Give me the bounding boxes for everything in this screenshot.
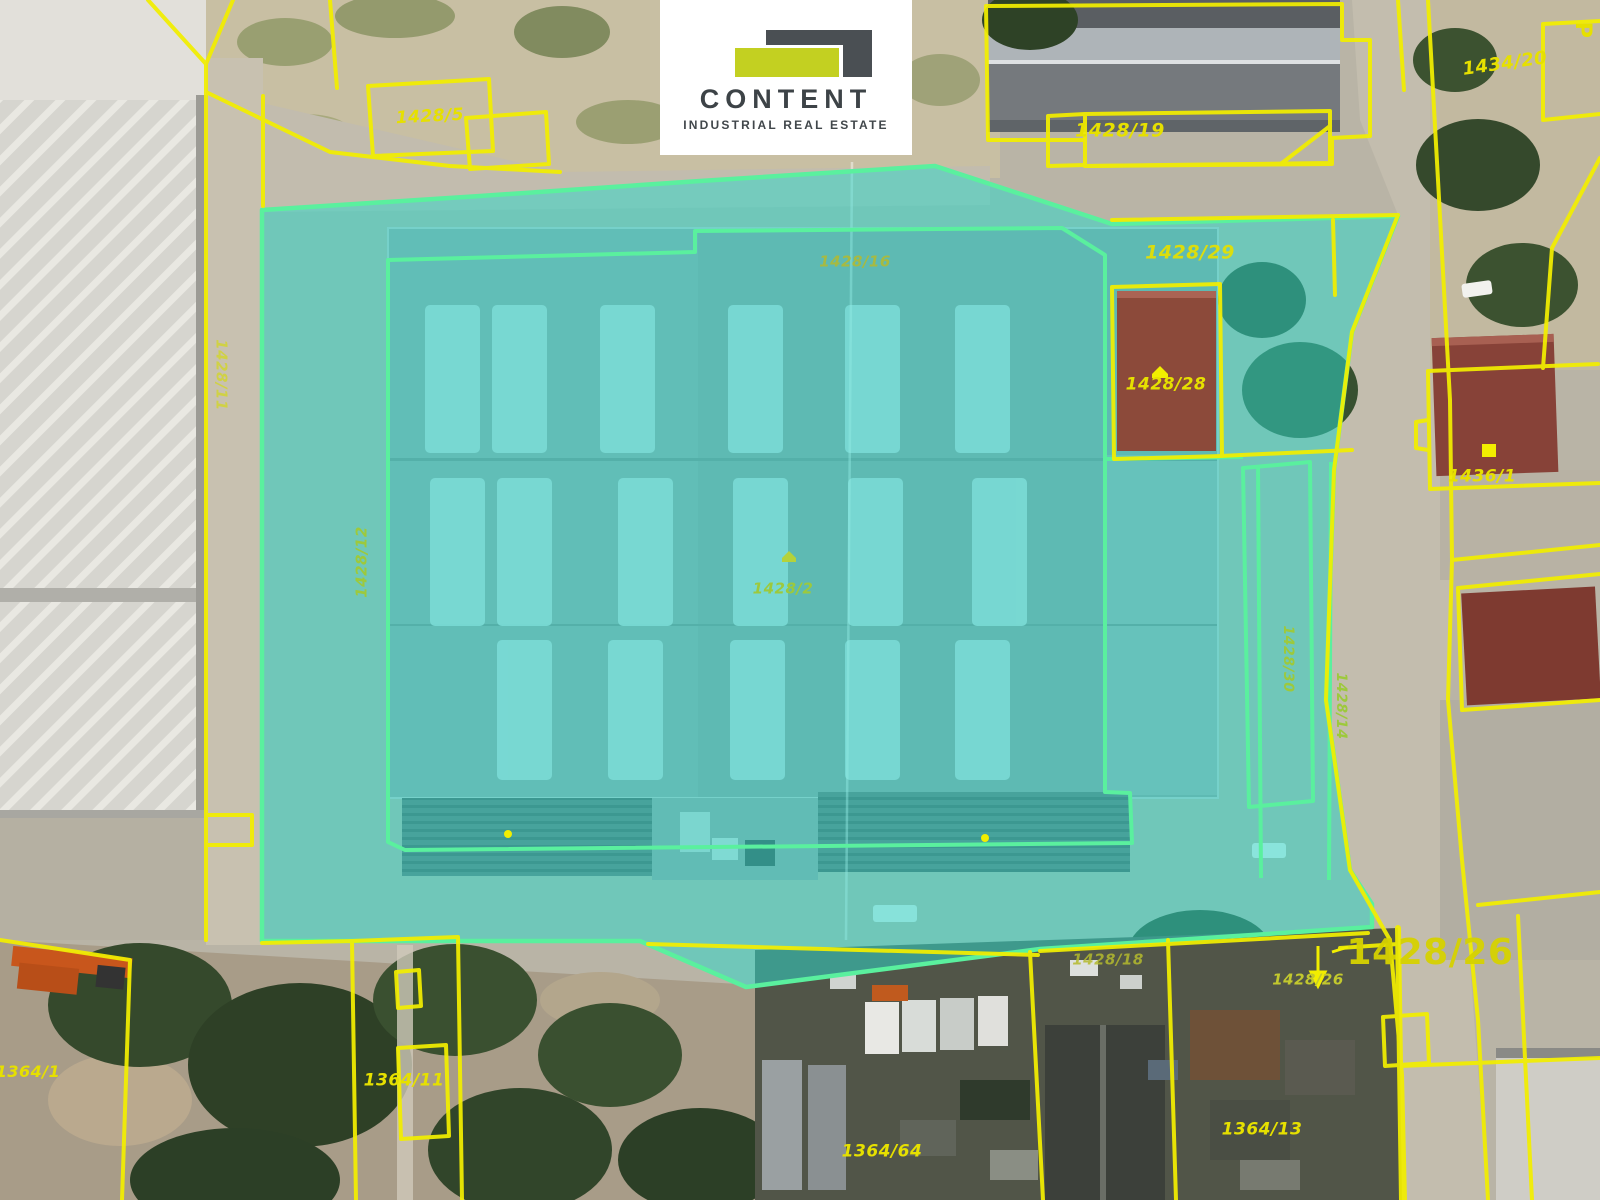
parcel-label-1428-11: 1428/11 <box>214 339 229 411</box>
parcel-label-1428-18: 1428/18 <box>1072 953 1144 968</box>
parcel-label-1428-28: 1428/28 <box>1126 377 1207 394</box>
parcel-label-1364-64: 1364/64 <box>842 1144 923 1161</box>
dot-marker-left <box>504 830 512 838</box>
left-warehouse-building <box>0 0 206 940</box>
logo-title: CONTENT <box>660 84 912 115</box>
parcel-label-1428-30: 1428/30 <box>1281 625 1295 692</box>
square-marker-1436-1 <box>1482 444 1496 457</box>
parcel-label-1364-11: 1364/11 <box>364 1073 445 1090</box>
parcel-label-1428-29: 1428/29 <box>1145 244 1235 263</box>
street-letter-p: P <box>1571 22 1593 39</box>
parcel-label-1428-16: 1428/16 <box>819 255 891 270</box>
parcel-label-1428-26-small: 1428/26 <box>1272 973 1344 988</box>
parcel-label-1364-1: 1364/1 <box>0 1064 60 1080</box>
parcel-label-1428-12: 1428/12 <box>355 526 370 598</box>
logo-subtitle: INDUSTRIAL REAL ESTATE <box>660 118 912 132</box>
map-canvas[interactable]: 1428/5 1428/19 1434/20 1428/29 1428/16 1… <box>0 0 1600 1200</box>
parcel-label-1428-26-large: 1428/26 <box>1347 935 1514 971</box>
parcel-label-1428-5: 1428/5 <box>395 107 464 128</box>
dot-marker-right <box>981 834 989 842</box>
red-roof-building <box>1117 291 1216 451</box>
highlighted-parcel[interactable] <box>262 166 1398 987</box>
parcel-label-1428-19: 1428/19 <box>1075 122 1165 141</box>
aerial-map-image <box>0 0 1600 1200</box>
parcel-label-1428-14: 1428/14 <box>1334 672 1348 739</box>
parcel-label-1364-13: 1364/13 <box>1222 1122 1303 1139</box>
parcel-label-1436-1: 1436/1 <box>1448 469 1516 486</box>
logo: CONTENT INDUSTRIAL REAL ESTATE <box>660 0 912 155</box>
parcel-label-1428-2: 1428/2 <box>753 582 814 597</box>
